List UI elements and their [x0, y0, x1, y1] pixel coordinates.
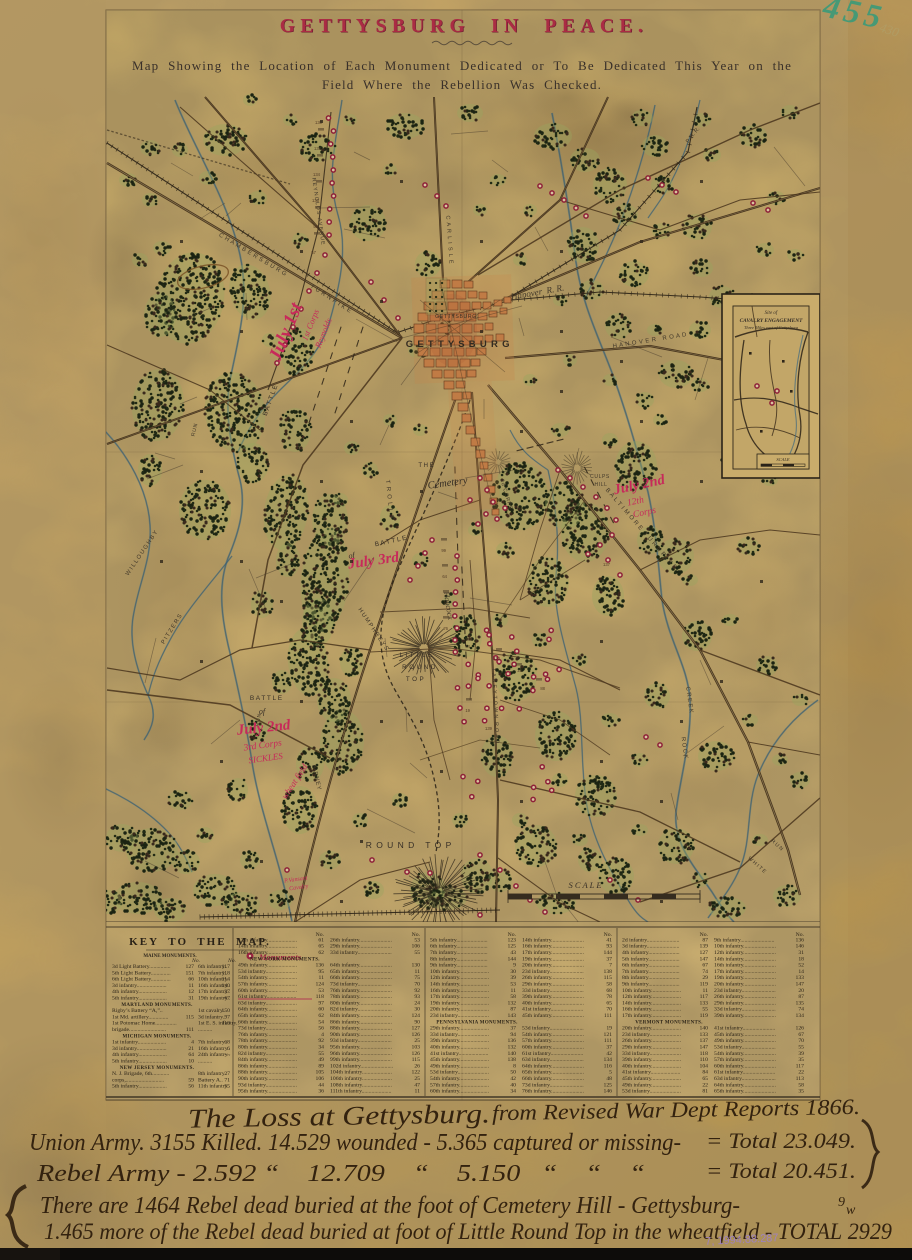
svg-text:SCALE: SCALE: [776, 457, 790, 462]
svg-text:Field Where the Rebellion: Field Where the Rebellion Was Checked.: [322, 77, 602, 92]
svg-text:88: 88: [540, 686, 545, 691]
svg-text:G E T T Y S B U R G: G E T T Y S B U R G: [406, 339, 511, 350]
svg-text:44: 44: [465, 644, 470, 649]
svg-text:135: 135: [314, 146, 322, 151]
svg-text:2d infantry...................: 2d infantry.......................3d inf…: [622, 936, 682, 1094]
svg-text:9: 9: [838, 1195, 845, 1210]
svg-text:64: 64: [442, 574, 447, 579]
svg-text:139: 139: [485, 726, 493, 731]
svg-text:There are 1464 Rebel dead buri: There are 1464 Rebel dead buried at the …: [40, 1193, 740, 1219]
svg-text:19: 19: [465, 708, 470, 713]
svg-text:137: 137: [603, 562, 611, 567]
svg-text:L I T T L E: L I T T L E: [400, 652, 433, 659]
svg-text:R O U N D T O P: R O U N D T O P: [366, 840, 453, 850]
svg-text:HILL: HILL: [595, 482, 608, 488]
svg-text:5th infantry..................: 5th infantry......................6th in…: [430, 936, 490, 1094]
svg-text:Site of: Site of: [765, 311, 778, 316]
svg-text:Rebel Army - 2.592 “ 12.709: Rebel Army - 2.592 “ 12.709 “ 5.150 “ “ …: [36, 1161, 645, 1187]
svg-text:= Total 23.049.: = Total 23.049.: [706, 1128, 856, 1153]
svg-text:MAINE MONUMENTS.: MAINE MONUMENTS.: [143, 954, 197, 959]
svg-text:GETTYSBURG.: GETTYSBURG.: [435, 314, 479, 320]
svg-text:T H E: T H E: [418, 463, 433, 469]
svg-text:MICHIGAN MONUMENTS.: MICHIGAN MONUMENTS.: [122, 1034, 191, 1039]
svg-text:MARYLAND MONUMENTS.: MARYLAND MONUMENTS.: [121, 1003, 193, 1008]
svg-text:T O P: T O P: [406, 676, 424, 683]
svg-text:B A T T L E: B A T T L E: [250, 695, 283, 702]
svg-text:GETTYSBURG IN PEACE.: GETTYSBURG IN PEACE.: [280, 16, 649, 37]
svg-text:23: 23: [517, 668, 522, 673]
svg-text:14th infantry.................: 14th infantry.......................16th…: [522, 936, 584, 1094]
svg-text:99: 99: [441, 548, 446, 553]
svg-text:VERMONT MONUMENTS.: VERMONT MONUMENTS.: [635, 1020, 703, 1025]
svg-text:CULPS: CULPS: [590, 474, 610, 480]
svg-text:76: 76: [443, 626, 448, 631]
svg-text:S C A L E: S C A L E: [568, 880, 602, 890]
svg-text:110: 110: [493, 656, 500, 661]
svg-text:NEW YORK MONUMENTS.: NEW YORK MONUMENTS.: [250, 957, 320, 962]
svg-text:Map Showing the Location o: Map Showing the Location of Each Monumen…: [132, 58, 792, 73]
svg-text:w: w: [846, 1203, 856, 1218]
svg-text:NEW JERSEY MONUMENTS.: NEW JERSEY MONUMENTS.: [120, 1066, 195, 1071]
svg-text:Union Army. 3155 Killed. 14.52: Union Army. 3155 Killed. 14.529 wounded …: [29, 1130, 681, 1156]
svg-text:134: 134: [313, 172, 321, 177]
svg-text:PENNSYLVANIA MONUMENTS.: PENNSYLVANIA MONUMENTS.: [436, 1020, 518, 1025]
svg-text:The Loss at Gettysburg.: The Loss at Gettysburg.: [188, 1098, 490, 1133]
svg-text:CAVALRY ENGAGEMENT: CAVALRY ENGAGEMENT: [740, 318, 804, 324]
svg-text:= Total 20.451.: = Total 20.451.: [706, 1158, 856, 1183]
svg-text:R O U N D: R O U N D: [402, 664, 436, 671]
svg-text:9th infantry..................: 9th infantry........................10th…: [714, 936, 776, 1094]
svg-text:57: 57: [311, 250, 316, 255]
